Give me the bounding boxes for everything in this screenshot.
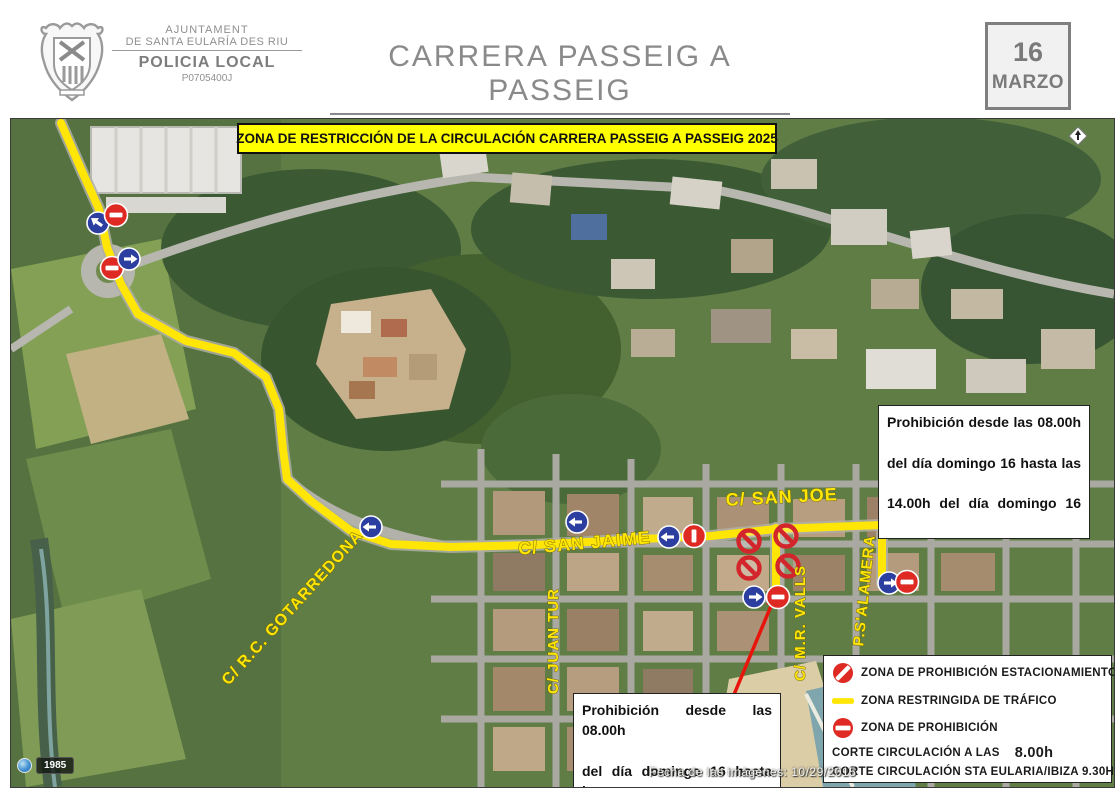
blue-arrow-sign xyxy=(566,511,588,533)
map-container: C/ SAN JOEC/ SAN JAIMEC/ R.C. GOTARREDON… xyxy=(10,118,1115,788)
legend-label: ZONA RESTRINGIDA DE TRÁFICO xyxy=(861,695,1057,707)
date-day: 16 xyxy=(1013,39,1043,66)
restriction-banner: ZONA DE RESTRICCIÓN DE LA CIRCULACIÓN CA… xyxy=(237,123,777,154)
callout-line: Prohibición desde las 08.00h xyxy=(887,412,1081,453)
blue-arrow-sign xyxy=(118,248,140,270)
callout-box-top-right: Prohibición desde las 08.00hdel día domi… xyxy=(878,405,1090,539)
no-parking-sign xyxy=(776,526,797,547)
legend-time: 8.00h xyxy=(1015,745,1054,761)
police-code: P0705400J xyxy=(112,73,302,84)
callout-line: del día domingo 16 hasta las xyxy=(887,453,1081,494)
globe-icon xyxy=(17,758,32,773)
callout-line: 14.00h del día domingo 16 xyxy=(887,493,1081,534)
restricted-route-line xyxy=(61,123,981,547)
page-title-wrap: CARRERA PASSEIG A PASSEIG xyxy=(330,40,790,115)
no-entry-icon xyxy=(832,717,854,739)
legend-row: ZONA DE PROHIBICIÓN ESTACIONAMIENTO. xyxy=(832,662,1105,684)
legend-label: CORTE CIRCULACIÓN A LAS xyxy=(832,747,1000,759)
imagery-date-attribution: Fecha de las imágenes: 10/29/2015 xyxy=(649,765,856,779)
legend-box: ZONA DE PROHIBICIÓN ESTACIONAMIENTO. ZON… xyxy=(823,655,1112,783)
street-label: C/ R.C. GOTARREDONA xyxy=(219,527,367,688)
street-label: C/ SAN JAIME xyxy=(517,527,651,559)
legend-label: ZONA DE PROHIBICIÓN ESTACIONAMIENTO. xyxy=(861,667,1115,679)
no-parking-sign xyxy=(739,531,760,552)
legend-row: CORTE CIRCULACIÓN A LAS 8.00h xyxy=(832,745,1105,761)
department-name: POLICIA LOCAL xyxy=(112,54,302,72)
restricted-line-icon xyxy=(832,690,854,712)
north-compass-icon xyxy=(1069,127,1087,145)
municipality-name-line1: AJUNTAMENT xyxy=(112,24,302,36)
header-authority-block: AJUNTAMENT DE SANTA EULARÍA DES RIU POLI… xyxy=(112,24,302,84)
blue-arrow-sign xyxy=(743,586,765,608)
callout-pointer-arrow xyxy=(733,606,771,697)
legend-row: ZONA RESTRINGIDA DE TRÁFICO xyxy=(832,690,1105,712)
timeline-badge-group: 1985 xyxy=(17,757,74,774)
street-label: P.S'ALAMERA xyxy=(850,534,879,647)
legend-row: ZONA DE PROHIBICIÓN xyxy=(832,717,1105,739)
blue-arrow-sign xyxy=(360,516,382,538)
callout-line: Prohibición desde las 08.00h xyxy=(582,700,772,761)
blue-arrow-sign xyxy=(658,526,680,548)
no-parking-sign xyxy=(739,558,760,579)
municipal-crest-logo xyxy=(36,20,108,106)
road-base xyxy=(61,123,981,547)
legend-label: ZONA DE PROHIBICIÓN xyxy=(861,722,998,734)
street-label: C/ SAN JOE xyxy=(725,484,838,510)
page-title: CARRERA PASSEIG A PASSEIG xyxy=(330,40,790,115)
page-root: { "header": { "municipality_line1": "AJU… xyxy=(0,0,1116,790)
legend-label: CORTE CIRCULACIÓN STA EULARIA/IBIZA 9.30… xyxy=(832,766,1114,778)
no-parking-icon xyxy=(832,662,854,684)
no-entry-sign xyxy=(896,571,919,594)
date-box: 16 MARZO xyxy=(985,22,1071,110)
no-entry-sign xyxy=(105,204,128,227)
legend-row: CORTE CIRCULACIÓN STA EULARIA/IBIZA 9.30… xyxy=(832,766,1105,778)
street-label: C/ M.R. VALLS xyxy=(792,565,809,681)
no-entry-v-sign xyxy=(683,525,706,548)
date-month: MARZO xyxy=(992,72,1064,94)
no-entry-sign xyxy=(767,586,790,609)
street-label: C/ JUAN TUR xyxy=(545,588,562,694)
timeline-year-badge: 1985 xyxy=(36,757,74,774)
municipality-name-line2: DE SANTA EULARÍA DES RIU xyxy=(112,36,302,51)
